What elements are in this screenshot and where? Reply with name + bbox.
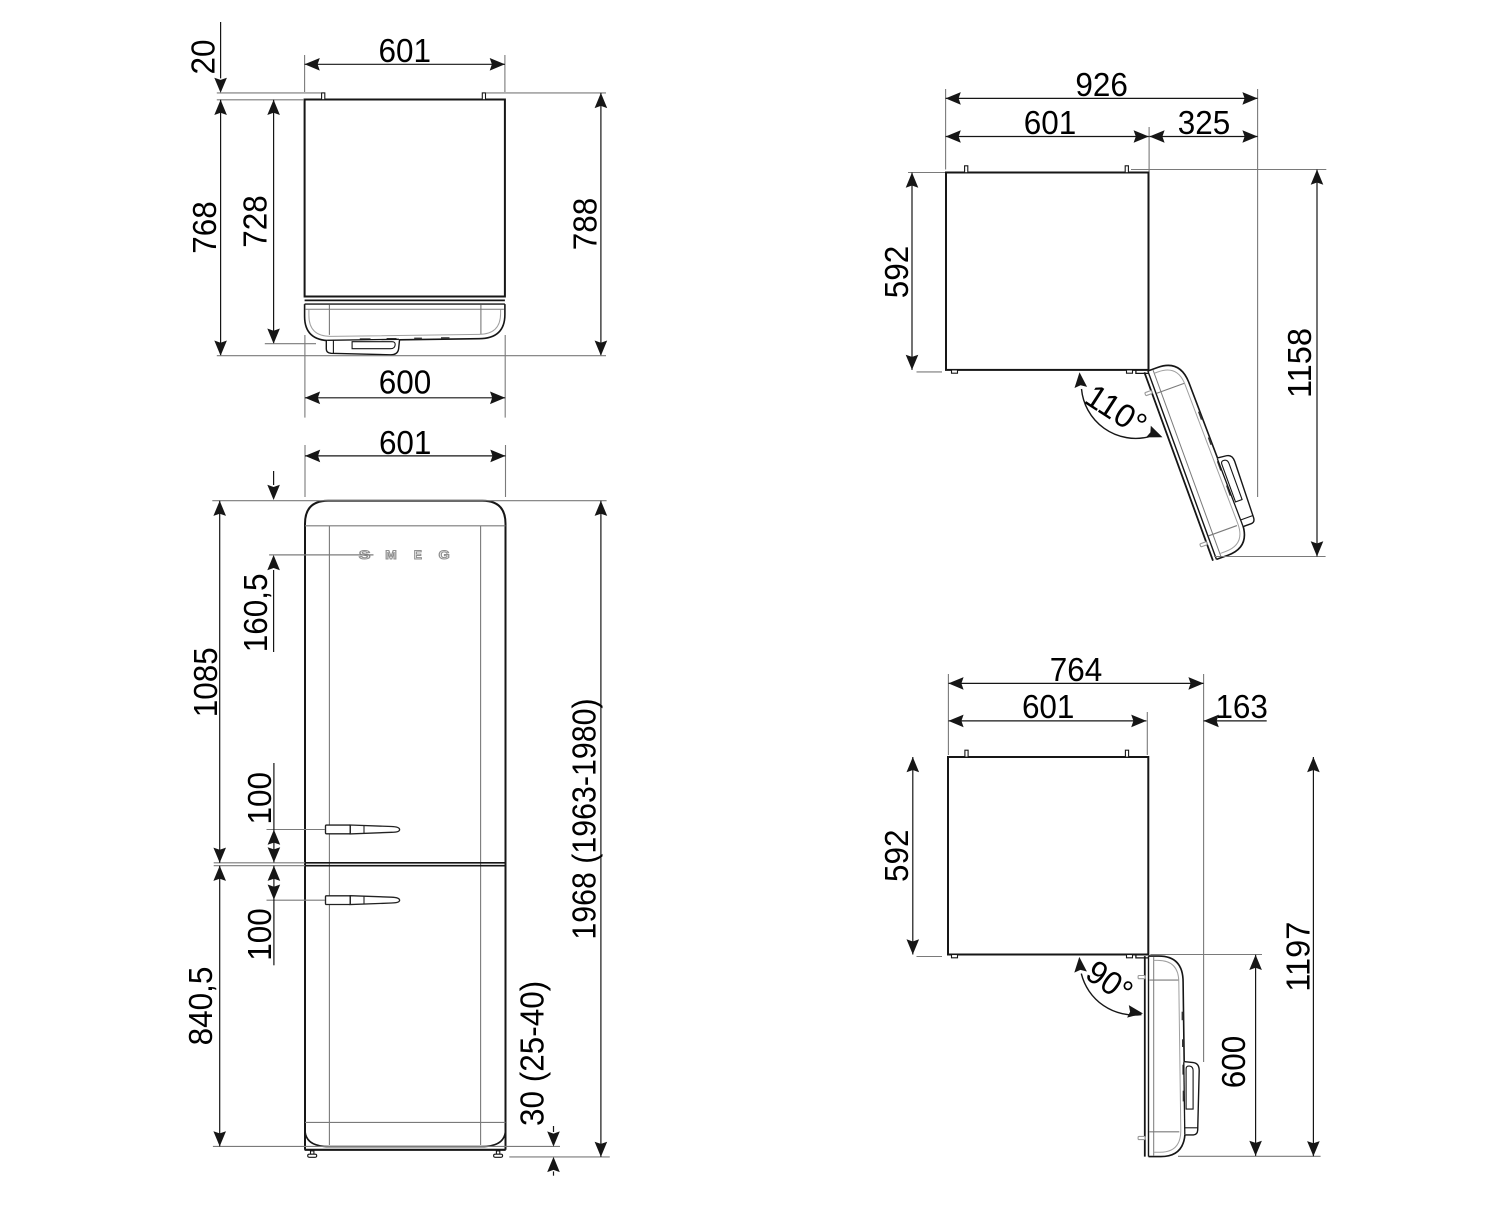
svg-text:601: 601 (1022, 688, 1075, 725)
svg-text:592: 592 (878, 246, 915, 299)
svg-text:163: 163 (1215, 688, 1268, 725)
svg-text:600: 600 (379, 364, 432, 401)
svg-text:788: 788 (567, 198, 604, 251)
svg-text:325: 325 (1178, 104, 1231, 141)
svg-text:926: 926 (1075, 66, 1128, 103)
svg-text:E: E (414, 550, 422, 562)
svg-text:30 (25-40): 30 (25-40) (513, 981, 550, 1126)
svg-text:592: 592 (878, 830, 915, 883)
svg-text:768: 768 (186, 201, 223, 254)
svg-text:600: 600 (1215, 1036, 1252, 1089)
svg-text:601: 601 (379, 32, 432, 69)
svg-text:1158: 1158 (1281, 328, 1318, 398)
svg-text:1968 (1963-1980): 1968 (1963-1980) (565, 698, 602, 939)
svg-text:100: 100 (241, 772, 278, 825)
svg-text:S: S (359, 550, 371, 562)
svg-text:1085: 1085 (187, 647, 224, 717)
svg-text:160,5: 160,5 (237, 574, 274, 653)
svg-text:764: 764 (1050, 651, 1103, 688)
svg-text:20: 20 (185, 40, 222, 75)
svg-text:G: G (439, 550, 450, 562)
svg-text:601: 601 (379, 424, 432, 461)
svg-text:601: 601 (1024, 104, 1077, 141)
svg-text:100: 100 (241, 908, 278, 961)
svg-text:728: 728 (237, 195, 274, 248)
svg-text:M: M (385, 550, 397, 562)
svg-text:1197: 1197 (1280, 922, 1317, 992)
svg-text:840,5: 840,5 (182, 967, 219, 1046)
